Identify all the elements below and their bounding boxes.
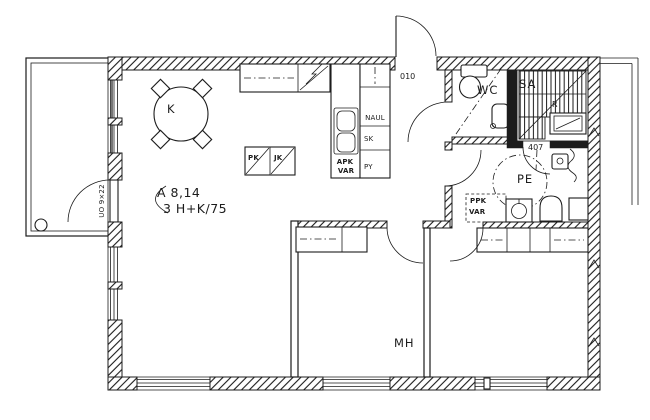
left-wall-seg — [108, 153, 122, 180]
bottom-wall-seg — [547, 377, 600, 390]
sauna-mark: R — [552, 100, 558, 109]
washroom-label: PE — [517, 172, 533, 186]
kitchen-counter — [240, 64, 330, 92]
fridge-label: JK — [273, 154, 283, 162]
sauna-south-wall — [550, 141, 588, 148]
floor-plan-canvas: UO 9×22 — [0, 0, 650, 420]
balcony-door-leaf — [110, 180, 118, 222]
sauna-bench-low — [519, 117, 545, 139]
left-wall-seg — [108, 57, 122, 80]
bedroom2-door-swing — [387, 227, 423, 263]
unit-label: A 8,14 3 H+K/75 — [155, 185, 227, 216]
hall-east-wall — [445, 70, 452, 102]
bedrooms: MH — [296, 227, 588, 350]
dishwasher-reservation-label: VAR — [338, 167, 355, 175]
washroom-ref-code: 407 — [528, 143, 543, 152]
bedroom-partition — [424, 228, 430, 377]
kitchen-label: K — [167, 102, 176, 116]
stairwell-wall — [600, 58, 638, 205]
bedroom-label: MH — [394, 336, 415, 350]
freezer-label: PK — [248, 154, 259, 162]
kitchen: K APK VAR NAUL SK PY PK JK — [151, 64, 390, 178]
sauna-label: SA — [519, 77, 536, 91]
laundry-closet-label: PY — [364, 163, 373, 171]
washroom-toilet — [540, 196, 562, 221]
dishwasher-reservation-label: APK — [337, 158, 354, 166]
dining-chairs — [151, 79, 211, 148]
washer-reservation-label: PPK — [470, 197, 487, 205]
wc-label: WC — [477, 83, 498, 97]
wc-room: WC — [408, 63, 509, 142]
coat-rack-label: NAUL — [365, 114, 385, 122]
balcony: UO 9×22 — [26, 58, 118, 236]
entry-door-code: 010 — [400, 72, 415, 81]
floor-plan-page: UO 9×22 — [0, 0, 650, 420]
balcony-door-size-label: UO 9×22 — [98, 184, 106, 218]
wardrobe-row — [296, 227, 367, 252]
hall-east-wall — [445, 142, 452, 150]
entry-door-swing — [396, 16, 436, 56]
sauna-west-wall — [507, 70, 517, 141]
left-wall-seg — [108, 222, 122, 247]
unit-number: A 8,14 — [157, 185, 200, 200]
left-wall-seg — [108, 320, 122, 377]
sauna-south-wall — [507, 141, 523, 148]
toilet-tank — [461, 65, 487, 77]
wc-south-wall — [452, 137, 510, 144]
bottom-wall-seg — [390, 377, 475, 390]
washroom-south-wall — [483, 222, 588, 228]
shower-hose — [568, 149, 576, 182]
bottom-wall-seg — [210, 377, 323, 390]
washer-reservation-label: VAR — [469, 208, 486, 216]
unit-type: 3 H+K/75 — [163, 201, 227, 216]
water-heater — [569, 198, 588, 220]
bottom-wall-seg — [108, 377, 137, 390]
window-mullion — [108, 282, 122, 289]
washroom: 407 PE PPK VAR — [445, 143, 588, 222]
window-mullion — [484, 378, 490, 389]
sauna-room: SA R — [507, 70, 588, 174]
wc-door-swing — [408, 102, 448, 142]
right-wall — [588, 57, 600, 390]
window-mullion — [108, 118, 122, 125]
bedroom1-north-wall — [423, 221, 450, 228]
washroom-door-swing — [445, 150, 481, 186]
shower-mixer — [552, 154, 568, 169]
center-line — [536, 150, 537, 170]
cleaning-closet-label: SK — [364, 135, 374, 143]
bottom-windows — [108, 377, 600, 390]
